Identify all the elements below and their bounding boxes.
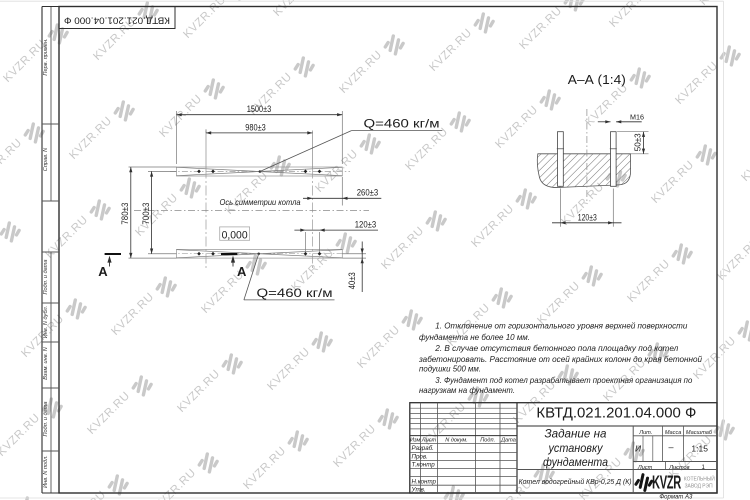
- svg-text:Котел водогрейный КВр-0,25 Д (: Котел водогрейный КВр-0,25 Д (К): [519, 477, 632, 486]
- svg-text:КВТД.021.201.04.000 Ф: КВТД.021.201.04.000 Ф: [536, 405, 696, 421]
- svg-text:Задание на: Задание на: [545, 426, 607, 440]
- svg-text:Пров.: Пров.: [412, 453, 428, 460]
- svg-text:KVZR.RU: KVZR.RU: [493, 104, 540, 151]
- svg-text:Q=460 кг/м: Q=460 кг/м: [257, 286, 333, 300]
- svg-text:3. Фундамент под котел разраба: 3. Фундамент под котел разрабатывает про…: [435, 375, 692, 385]
- svg-text:Масса: Масса: [665, 430, 682, 436]
- svg-text:1500±3: 1500±3: [247, 104, 272, 115]
- svg-text:KVZR.RU: KVZR.RU: [625, 258, 672, 305]
- svg-text:Справ. N: Справ. N: [43, 147, 49, 171]
- svg-text:260±3: 260±3: [357, 188, 379, 199]
- svg-text:1:15: 1:15: [691, 444, 708, 454]
- svg-text:ЗАВОД РЭП: ЗАВОД РЭП: [685, 483, 713, 489]
- svg-text:KVZR.RU: KVZR.RU: [403, 126, 450, 173]
- svg-text:KVZR.RU: KVZR.RU: [265, 346, 312, 393]
- svg-text:KVZR.RU: KVZR.RU: [379, 225, 426, 272]
- svg-text:KVZR.RU: KVZR.RU: [223, 170, 270, 217]
- svg-text:KVZR.RU: KVZR.RU: [517, 5, 564, 52]
- svg-text:Лит.: Лит.: [638, 430, 652, 436]
- svg-text:фундамента не более 10 мм.: фундамента не более 10 мм.: [419, 332, 530, 342]
- svg-text:KVZR.RU: KVZR.RU: [427, 27, 474, 74]
- svg-text:1. Отклонение от горизонтально: 1. Отклонение от горизонтального уровня …: [435, 321, 687, 331]
- svg-text:Q=460 кг/м: Q=460 кг/м: [364, 116, 440, 130]
- svg-text:М16: М16: [630, 113, 644, 122]
- svg-text:–: –: [668, 442, 673, 452]
- svg-text:подушки 500 мм.: подушки 500 мм.: [419, 364, 481, 374]
- svg-text:Н.контр: Н.контр: [412, 479, 437, 486]
- svg-text:N докум.: N докум.: [445, 438, 468, 444]
- svg-text:КВТД.021.201.04.000 Ф: КВТД.021.201.04.000 Ф: [64, 15, 170, 26]
- svg-text:Перв. примен.: Перв. примен.: [43, 38, 49, 75]
- svg-text:KVZR.RU: KVZR.RU: [85, 390, 132, 437]
- svg-text:KVZR.RU: KVZR.RU: [109, 291, 156, 338]
- svg-text:120±3: 120±3: [578, 212, 597, 222]
- svg-text:KVZR.RU: KVZR.RU: [649, 159, 696, 206]
- svg-text:KVZR.RU: KVZR.RU: [157, 93, 204, 140]
- svg-text:Подп. и дата: Подп. и дата: [43, 401, 49, 436]
- svg-text:Взам. инв. N: Взам. инв. N: [43, 346, 49, 380]
- svg-text:Дата: Дата: [500, 438, 516, 444]
- svg-text:А: А: [237, 264, 247, 279]
- svg-text:KVZR.RU: KVZR.RU: [241, 445, 288, 492]
- svg-text:КОТЕЛЬНЫЙ: КОТЕЛЬНЫЙ: [684, 475, 715, 483]
- svg-text:KVZR.RU: KVZR.RU: [607, 0, 654, 30]
- svg-text:установку: установку: [548, 441, 604, 455]
- svg-text:700±3: 700±3: [141, 203, 152, 225]
- svg-text:120±3: 120±3: [355, 220, 377, 231]
- svg-text:KVZR.RU: KVZR.RU: [271, 0, 318, 19]
- svg-text:KVZR.RU: KVZR.RU: [715, 236, 750, 283]
- svg-text:40±3: 40±3: [347, 272, 357, 289]
- svg-text:KVZR.RU: KVZR.RU: [355, 324, 402, 371]
- svg-text:KVZR.RU: KVZR.RU: [151, 467, 198, 500]
- svg-text:Лист: Лист: [421, 438, 437, 444]
- svg-text:980±3: 980±3: [245, 122, 266, 133]
- svg-text:KVZR.RU: KVZR.RU: [67, 115, 114, 162]
- svg-text:Подп.: Подп.: [480, 438, 495, 444]
- svg-text:KVZR.RU: KVZR.RU: [469, 203, 516, 250]
- svg-text:Подп. и дата: Подп. и дата: [43, 259, 49, 294]
- svg-text:KVZR.RU: KVZR.RU: [331, 423, 378, 470]
- svg-text:KVZR.RU: KVZR.RU: [0, 137, 24, 184]
- svg-text:Ось симметрии котла: Ось симметрии котла: [220, 197, 301, 207]
- svg-text:KVZR.RU: KVZR.RU: [337, 49, 384, 96]
- svg-text:KVZR.RU: KVZR.RU: [673, 60, 720, 107]
- svg-text:KVZR: KVZR: [652, 472, 681, 493]
- svg-text:И: И: [635, 444, 642, 454]
- svg-text:Изм: Изм: [410, 438, 421, 444]
- svg-text:KVZR.RU: KVZR.RU: [0, 412, 42, 459]
- svg-text:Лист: Лист: [637, 465, 653, 471]
- svg-text:Инв. N подл.: Инв. N подл.: [43, 455, 49, 488]
- svg-text:KVZR.RU: KVZR.RU: [739, 137, 750, 184]
- svg-text:Инв. N дубл.: Инв. N дубл.: [43, 306, 49, 338]
- svg-text:780±3: 780±3: [120, 203, 131, 225]
- svg-text:нагрузкам на фундамент.: нагрузкам на фундамент.: [419, 385, 515, 395]
- svg-text:Формат А3: Формат А3: [659, 494, 692, 500]
- svg-text:50±3: 50±3: [634, 133, 643, 151]
- svg-text:KVZR.RU: KVZR.RU: [1, 38, 48, 85]
- svg-text:Разраб.: Разраб.: [412, 445, 434, 452]
- svg-text:Т.контр: Т.контр: [412, 461, 436, 468]
- svg-text:Масштаб: Масштаб: [686, 430, 713, 436]
- svg-text:2. В случае отсутствия бетонно: 2. В случае отсутствия бетонного пола пл…: [434, 343, 678, 353]
- svg-text:А: А: [98, 264, 108, 279]
- svg-text:А–А (1:4): А–А (1:4): [568, 72, 626, 87]
- svg-text:0,000: 0,000: [222, 230, 248, 242]
- svg-text:KVZR.RU: KVZR.RU: [43, 214, 90, 261]
- svg-text:KVZR.RU: KVZR.RU: [175, 368, 222, 415]
- svg-text:фундамента: фундамента: [543, 455, 608, 469]
- svg-text:1: 1: [702, 465, 706, 471]
- svg-text:Листов: Листов: [668, 465, 689, 471]
- svg-text:забетонировать. Расстояние от: забетонировать. Расстояние от осей крайн…: [418, 354, 702, 364]
- svg-text:Утв.: Утв.: [411, 486, 426, 493]
